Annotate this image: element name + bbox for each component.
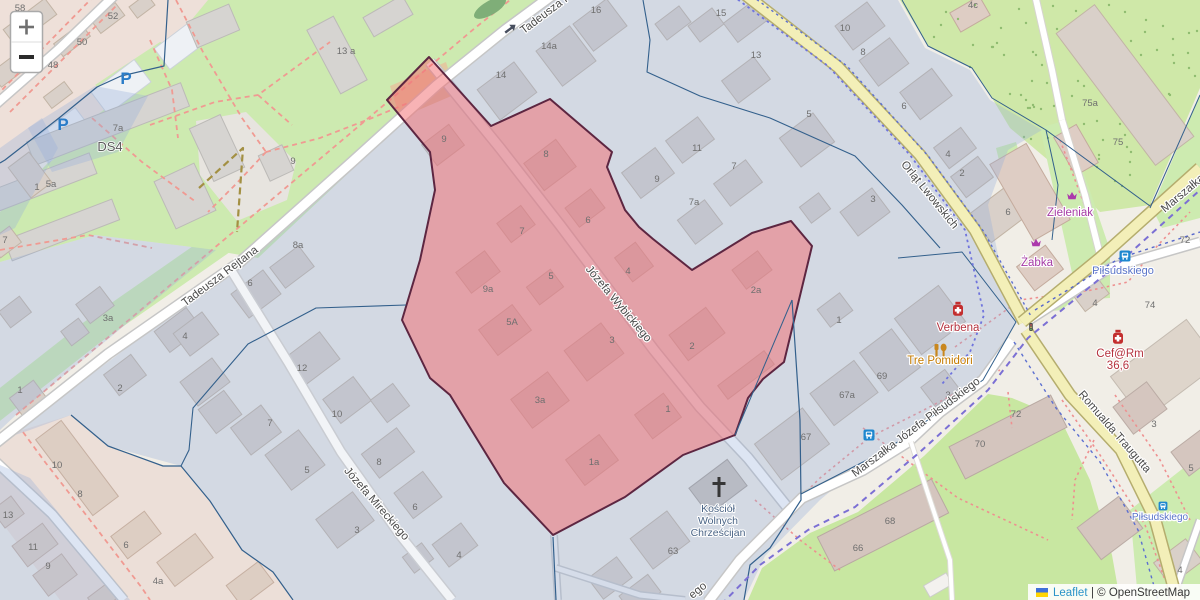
svg-text:3: 3 xyxy=(870,194,875,205)
svg-text:5a: 5a xyxy=(46,179,57,190)
svg-text:Zieleniak: Zieleniak xyxy=(1047,207,1093,219)
svg-text:5A: 5A xyxy=(506,317,518,328)
svg-text:5: 5 xyxy=(806,109,811,120)
svg-text:72: 72 xyxy=(1011,409,1022,420)
svg-text:8a: 8a xyxy=(293,240,304,251)
svg-text:7a: 7a xyxy=(689,197,700,208)
svg-text:11: 11 xyxy=(28,542,38,553)
svg-text:DS4: DS4 xyxy=(97,139,122,154)
svg-text:Leaflet: Leaflet xyxy=(1053,587,1088,599)
svg-text:7: 7 xyxy=(2,235,7,246)
svg-text:4: 4 xyxy=(182,331,187,342)
svg-text:6: 6 xyxy=(247,278,252,289)
svg-text:3a: 3a xyxy=(103,313,114,324)
svg-text:2a: 2a xyxy=(751,285,762,296)
svg-text:50: 50 xyxy=(77,37,88,48)
svg-text:4a: 4a xyxy=(153,576,164,587)
svg-text:14a: 14a xyxy=(541,41,558,52)
svg-text:6: 6 xyxy=(123,540,128,551)
svg-text:11: 11 xyxy=(692,143,702,154)
svg-text:9: 9 xyxy=(45,561,50,572)
svg-text:52: 52 xyxy=(108,11,119,22)
svg-text:13 a: 13 a xyxy=(337,46,356,57)
svg-text:Piłsudskiego: Piłsudskiego xyxy=(1092,265,1154,277)
svg-text:66: 66 xyxy=(853,543,864,554)
svg-text:10: 10 xyxy=(840,23,851,34)
svg-text:2: 2 xyxy=(689,341,694,352)
svg-text:8: 8 xyxy=(860,47,865,58)
svg-text:| © OpenStreetMap: | © OpenStreetMap xyxy=(1091,587,1190,599)
svg-text:Cef@Rm: Cef@Rm xyxy=(1096,348,1143,360)
svg-text:3: 3 xyxy=(354,525,359,536)
svg-text:13: 13 xyxy=(751,50,762,61)
svg-text:10: 10 xyxy=(52,460,63,471)
svg-text:Tre Pomidori: Tre Pomidori xyxy=(907,355,972,367)
svg-text:4: 4 xyxy=(625,266,630,277)
svg-text:8: 8 xyxy=(77,489,82,500)
svg-text:48: 48 xyxy=(48,60,59,71)
svg-text:67: 67 xyxy=(801,432,812,443)
svg-text:4: 4 xyxy=(1092,298,1097,309)
svg-text:Żabka: Żabka xyxy=(1021,256,1054,269)
svg-text:4: 4 xyxy=(456,550,461,561)
svg-text:8: 8 xyxy=(543,149,548,160)
svg-text:1: 1 xyxy=(17,385,22,396)
svg-text:67a: 67a xyxy=(839,390,856,401)
svg-text:16: 16 xyxy=(591,5,602,16)
svg-text:P: P xyxy=(120,69,131,88)
svg-text:74: 74 xyxy=(1145,300,1156,311)
svg-text:2: 2 xyxy=(959,168,964,179)
svg-text:5: 5 xyxy=(548,271,553,282)
svg-text:36,6: 36,6 xyxy=(1107,360,1129,372)
svg-text:7: 7 xyxy=(731,161,736,172)
svg-text:5: 5 xyxy=(1188,463,1193,474)
svg-text:Chrześcijan: Chrześcijan xyxy=(691,527,746,539)
svg-text:68: 68 xyxy=(885,516,896,527)
svg-text:Kościół: Kościół xyxy=(701,503,736,515)
svg-text:8: 8 xyxy=(376,457,381,468)
svg-text:4c: 4c xyxy=(968,0,978,11)
svg-text:P: P xyxy=(57,115,68,134)
svg-text:69: 69 xyxy=(877,371,888,382)
svg-text:Wolnych: Wolnych xyxy=(698,515,738,527)
svg-text:63: 63 xyxy=(668,546,679,557)
svg-text:Piłsudskiego: Piłsudskiego xyxy=(1132,512,1189,523)
svg-text:7a: 7a xyxy=(113,123,124,134)
svg-text:15: 15 xyxy=(716,8,727,19)
svg-text:4: 4 xyxy=(945,149,950,160)
svg-text:9: 9 xyxy=(290,156,295,167)
svg-text:9: 9 xyxy=(654,174,659,185)
svg-text:5: 5 xyxy=(304,465,309,476)
svg-text:9: 9 xyxy=(441,134,446,145)
svg-text:4: 4 xyxy=(1177,565,1182,576)
svg-text:13: 13 xyxy=(3,510,14,521)
svg-text:6: 6 xyxy=(901,101,906,112)
svg-text:3a: 3a xyxy=(535,395,546,406)
svg-text:10: 10 xyxy=(332,409,343,420)
svg-text:7: 7 xyxy=(267,418,272,429)
svg-text:2: 2 xyxy=(117,383,122,394)
svg-text:14: 14 xyxy=(496,70,507,81)
svg-text:3: 3 xyxy=(1151,419,1156,430)
svg-text:9a: 9a xyxy=(483,284,494,295)
svg-text:12: 12 xyxy=(297,363,308,374)
svg-text:6: 6 xyxy=(585,215,590,226)
svg-text:6: 6 xyxy=(412,502,417,513)
svg-text:Verbena: Verbena xyxy=(937,322,980,334)
svg-text:1: 1 xyxy=(34,182,39,193)
svg-text:75a: 75a xyxy=(1082,98,1099,109)
svg-text:3: 3 xyxy=(609,335,614,346)
svg-text:1: 1 xyxy=(836,315,841,326)
svg-text:1: 1 xyxy=(665,404,670,415)
svg-text:6: 6 xyxy=(1005,207,1010,218)
svg-text:75: 75 xyxy=(1113,137,1124,148)
svg-text:72: 72 xyxy=(1180,235,1191,246)
svg-text:7: 7 xyxy=(519,226,524,237)
svg-text:1a: 1a xyxy=(589,457,600,468)
svg-text:70: 70 xyxy=(975,439,986,450)
